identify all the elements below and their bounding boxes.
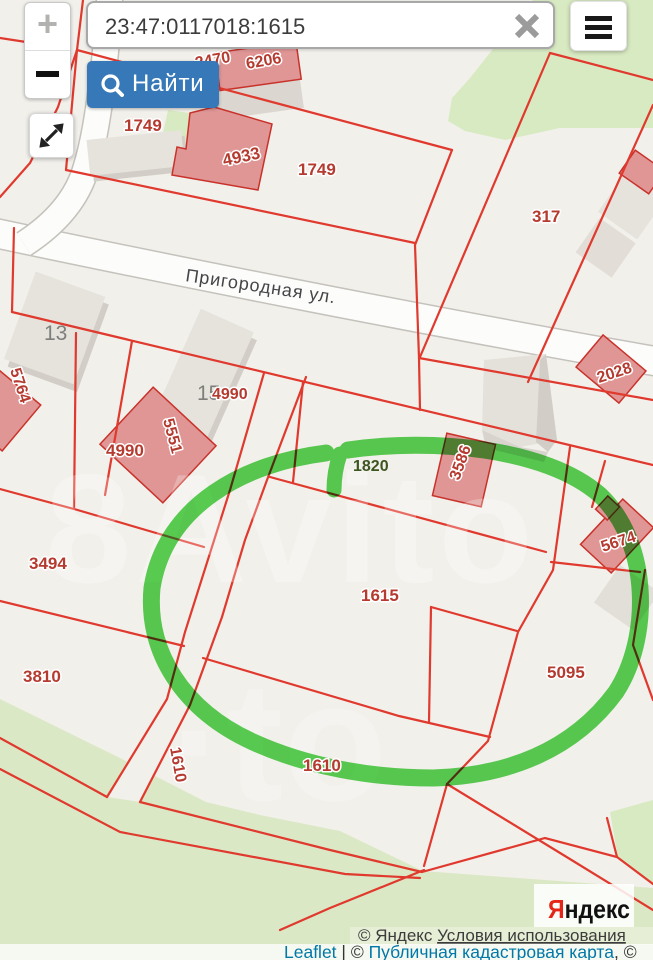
svg-text:3810: 3810 [23, 667, 61, 686]
svg-text:4990: 4990 [106, 441, 144, 460]
svg-text:4990: 4990 [212, 386, 248, 403]
svg-text:1615: 1615 [361, 586, 399, 605]
svg-text:317: 317 [532, 207, 560, 226]
svg-text:Яндекс: Яндекс [548, 894, 630, 924]
svg-text:1610: 1610 [303, 756, 341, 775]
svg-text:1820: 1820 [353, 458, 389, 475]
svg-text:5095: 5095 [547, 663, 585, 682]
svg-text:13: 13 [44, 322, 67, 345]
svg-text:3494: 3494 [29, 554, 67, 573]
svg-text:Leaflet | © Публичная кадастро: Leaflet | © Публичная кадастровая карта,… [284, 942, 637, 960]
svg-text:·tо: ·tо [170, 647, 387, 837]
svg-text:1749: 1749 [298, 160, 336, 179]
svg-text:1749: 1749 [124, 116, 162, 135]
